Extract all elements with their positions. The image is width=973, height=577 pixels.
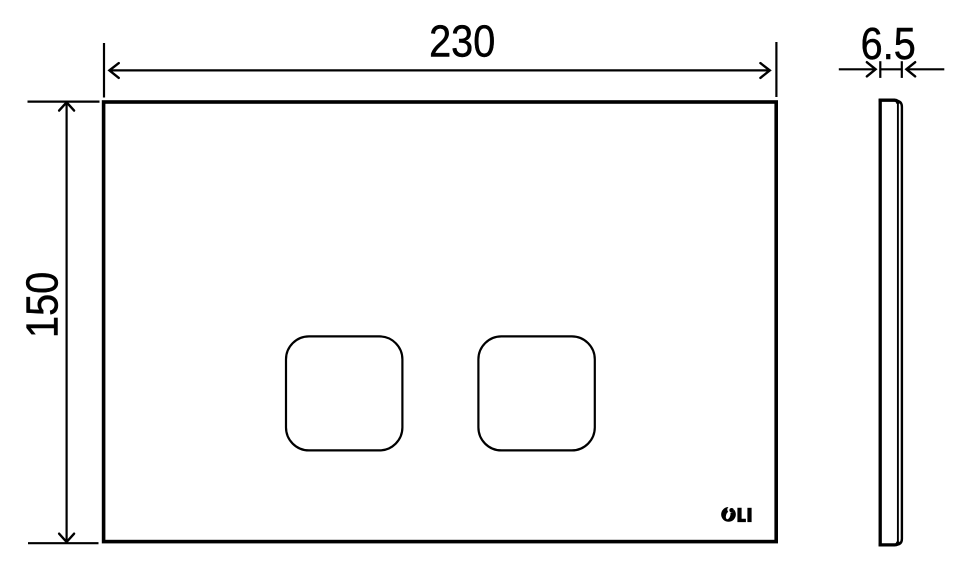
svg-text:230: 230 xyxy=(429,15,495,66)
svg-text:150: 150 xyxy=(16,272,67,338)
svg-text:6.5: 6.5 xyxy=(861,18,916,69)
